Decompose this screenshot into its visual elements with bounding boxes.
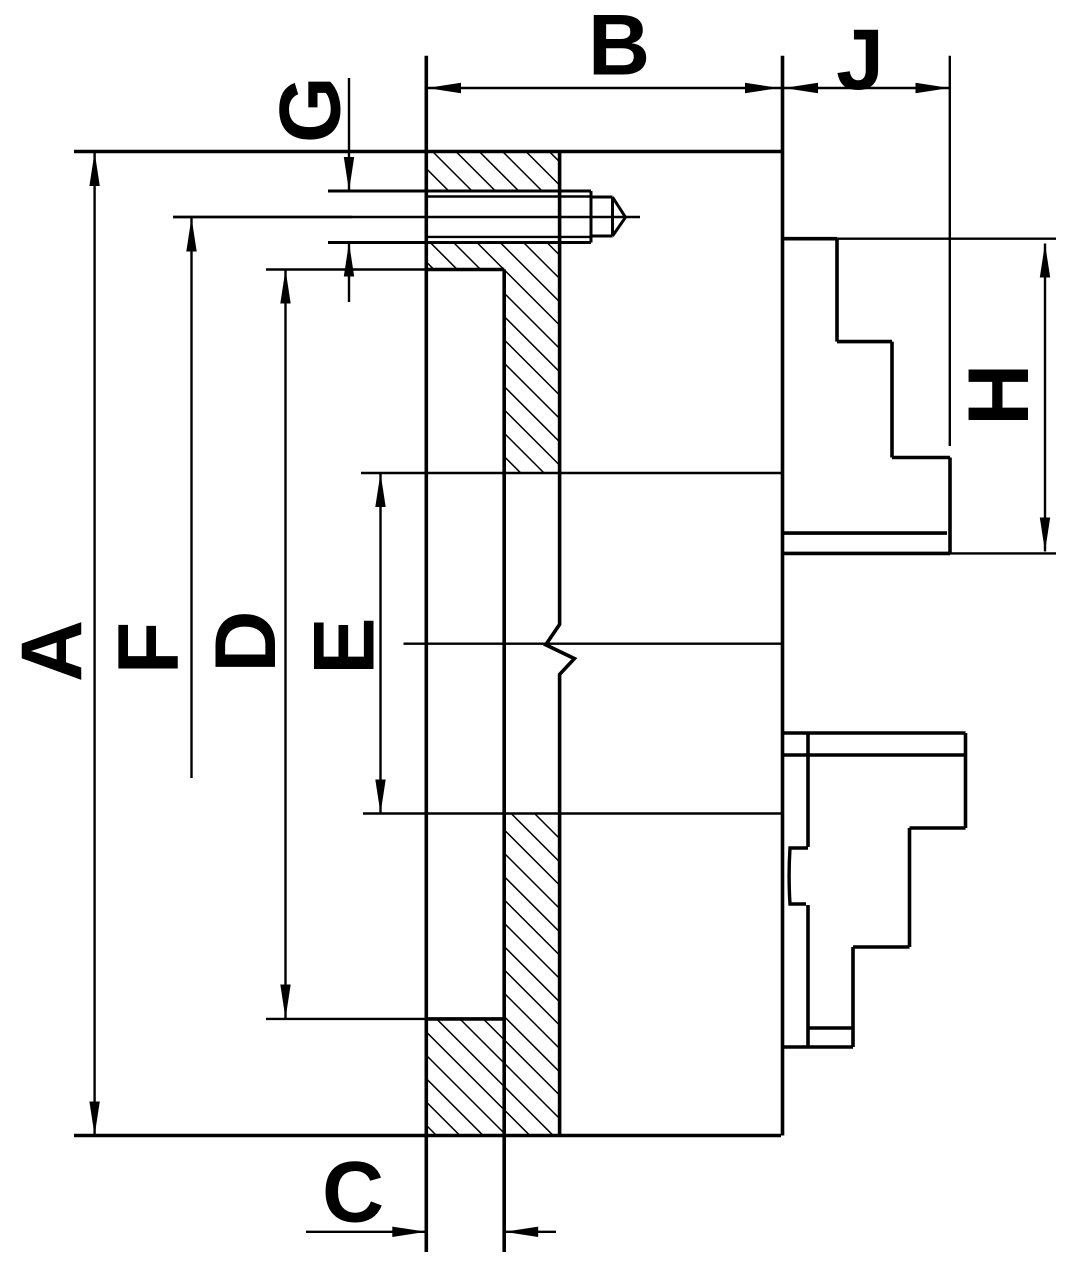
svg-text:H: H: [951, 364, 1047, 426]
svg-text:J: J: [836, 12, 884, 108]
svg-text:A: A: [4, 620, 100, 682]
svg-text:D: D: [198, 610, 294, 672]
svg-text:G: G: [263, 76, 359, 143]
svg-text:F: F: [101, 622, 197, 675]
svg-text:B: B: [588, 0, 650, 94]
svg-text:E: E: [297, 617, 393, 674]
svg-text:C: C: [322, 1145, 384, 1241]
